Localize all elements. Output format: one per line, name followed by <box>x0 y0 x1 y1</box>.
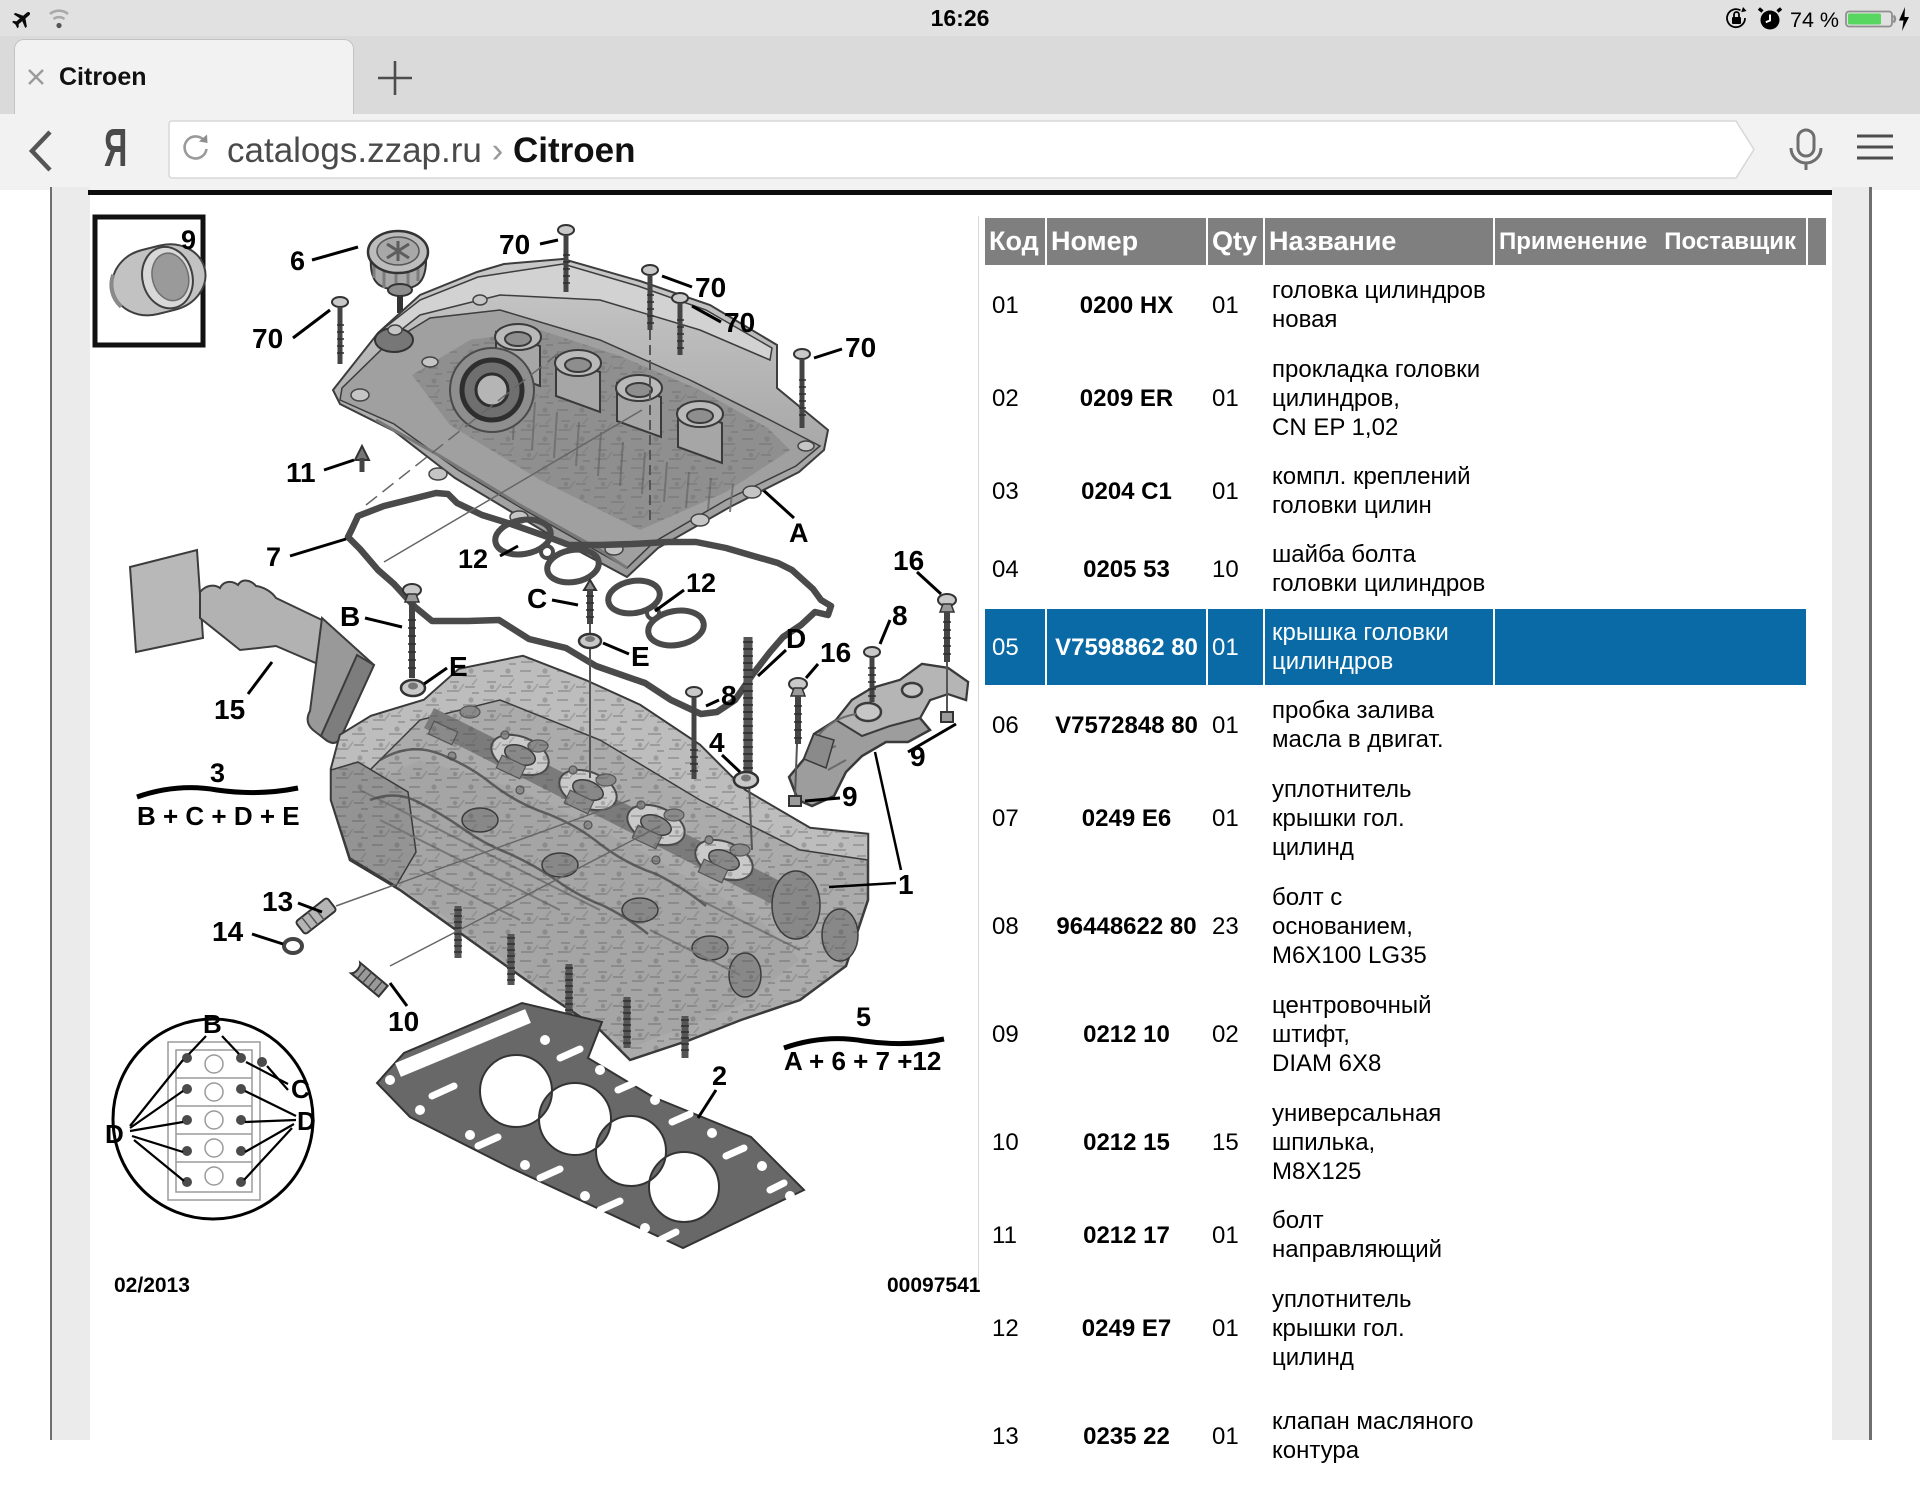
svg-text:70: 70 <box>695 272 726 303</box>
svg-text:15: 15 <box>214 694 245 725</box>
svg-text:7: 7 <box>266 542 281 572</box>
svg-text:14: 14 <box>212 916 244 947</box>
svg-text:70: 70 <box>724 307 755 338</box>
svg-text:3: 3 <box>210 758 225 788</box>
svg-text:C: C <box>291 1074 310 1104</box>
svg-text:70: 70 <box>845 332 876 363</box>
svg-text:11: 11 <box>286 457 316 488</box>
svg-text:02/2013: 02/2013 <box>114 1274 190 1297</box>
svg-text:D: D <box>786 623 806 654</box>
svg-text:5: 5 <box>856 1002 871 1032</box>
svg-text:C: C <box>527 583 547 614</box>
svg-text:D: D <box>105 1119 124 1149</box>
svg-text:A: A <box>789 518 809 548</box>
svg-text:B: B <box>203 1009 222 1039</box>
svg-text:2: 2 <box>712 1061 727 1091</box>
svg-text:74 %: 74 % <box>1790 8 1839 32</box>
svg-text:B: B <box>340 601 360 632</box>
svg-text:4: 4 <box>709 727 725 758</box>
svg-text:E: E <box>631 641 650 672</box>
svg-text:10: 10 <box>388 1006 419 1037</box>
svg-text:70: 70 <box>499 229 530 260</box>
svg-text:00097541: 00097541 <box>887 1274 980 1297</box>
svg-text:B + C + D + E: B + C + D + E <box>137 801 300 831</box>
svg-text:9: 9 <box>181 225 196 255</box>
svg-text:6: 6 <box>290 246 305 276</box>
svg-text:D: D <box>297 1106 316 1136</box>
svg-text:1: 1 <box>898 869 914 900</box>
svg-text:12: 12 <box>458 544 488 574</box>
svg-text:12: 12 <box>686 568 716 598</box>
svg-text:8: 8 <box>892 600 908 631</box>
svg-text:70: 70 <box>252 323 283 354</box>
svg-text:9: 9 <box>842 781 858 812</box>
svg-text:8: 8 <box>721 680 737 711</box>
svg-text:16: 16 <box>893 545 924 576</box>
svg-text:E: E <box>449 651 468 682</box>
svg-text:A + 6 + 7 +12: A + 6 + 7 +12 <box>784 1046 941 1076</box>
svg-text:13: 13 <box>262 886 293 917</box>
svg-text:16: 16 <box>820 637 851 668</box>
